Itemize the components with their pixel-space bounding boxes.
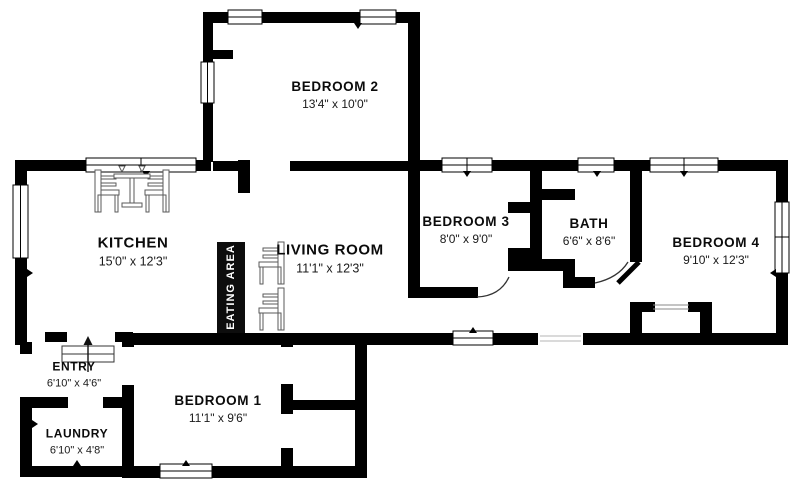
tick-mark	[680, 171, 688, 177]
window	[201, 62, 214, 103]
room-dims: 11'1" x 9'6"	[174, 411, 261, 425]
wall-segment	[508, 259, 575, 271]
tick-mark	[593, 171, 601, 177]
wall-segment	[408, 23, 420, 172]
room-dims: 13'4" x 10'0"	[291, 97, 378, 111]
room-label-living-room: LIVING ROOM 11'1" x 12'3"	[276, 242, 383, 277]
window	[360, 10, 396, 24]
room-label-bedroom-3: BEDROOM 3 8'0" x 9'0"	[422, 214, 509, 246]
wall-segment	[203, 103, 213, 162]
room-dims: 6'6" x 8'6"	[563, 234, 615, 248]
room-name: ENTRY	[47, 360, 101, 374]
wall-segment	[281, 448, 293, 476]
window	[453, 331, 493, 345]
wall-segment	[493, 333, 538, 345]
wall-segment	[15, 332, 27, 342]
room-label-kitchen: KITCHEN 15'0" x 12'3"	[98, 235, 169, 270]
dining-set	[95, 166, 169, 212]
room-name: BEDROOM 3	[422, 214, 509, 230]
wall-segment	[700, 302, 712, 345]
room-dims: 6'10" x 4'6"	[47, 377, 101, 390]
wall-segment	[281, 333, 293, 347]
room-label-bedroom-1: BEDROOM 1 11'1" x 9'6"	[174, 393, 261, 425]
window	[160, 464, 212, 478]
room-dims: 9'10" x 12'3"	[672, 253, 759, 267]
wall-segment	[630, 160, 642, 262]
room-label-bath: BATH 6'6" x 8'6"	[563, 216, 615, 248]
tick-mark	[770, 269, 776, 277]
room-dims: 6'10" x 4'8"	[46, 444, 108, 457]
wall-segment	[238, 160, 250, 193]
wall-segment	[281, 384, 293, 414]
window	[650, 158, 718, 172]
window	[228, 10, 262, 24]
room-label-laundry: LAUNDRY 6'10" x 4'8"	[46, 427, 108, 456]
window	[442, 158, 492, 172]
room-name: KITCHEN	[98, 235, 169, 252]
window	[775, 202, 789, 273]
wall-segment	[290, 161, 408, 171]
wall-segment	[293, 400, 355, 410]
wall-segment	[542, 189, 575, 200]
wall-segment	[20, 397, 68, 408]
chair	[259, 288, 284, 330]
room-label-bedroom-2: BEDROOM 2 13'4" x 10'0"	[291, 79, 378, 111]
wall-segment	[408, 172, 420, 298]
tick-mark	[463, 171, 471, 177]
wall-segment	[508, 248, 542, 259]
tick-mark	[182, 460, 190, 466]
room-name: BEDROOM 2	[291, 79, 378, 95]
entry-arrow-head	[84, 336, 93, 345]
wall-segment	[213, 50, 233, 59]
wall-segment	[20, 342, 32, 354]
room-dims: 15'0" x 12'3"	[98, 255, 169, 269]
wall-segment	[122, 333, 134, 347]
doors	[477, 262, 689, 341]
wall-segment	[203, 23, 213, 62]
tick-mark	[27, 269, 33, 277]
floor-plan: BEDROOM 2 13'4" x 10'0" KITCHEN 15'0" x …	[0, 0, 800, 495]
wall-segment	[508, 202, 532, 213]
wall-segment	[20, 397, 32, 477]
room-name: LIVING ROOM	[276, 242, 383, 259]
tick-mark	[32, 420, 38, 428]
wall-segment	[45, 332, 67, 342]
wall-segment	[408, 287, 478, 298]
wall-segment	[122, 466, 367, 478]
window	[578, 158, 614, 172]
room-name: BEDROOM 4	[672, 235, 759, 251]
tick-mark	[73, 460, 81, 466]
eating-area-label: EATING AREA	[225, 244, 237, 330]
room-label-bedroom-4: BEDROOM 4 9'10" x 12'3"	[672, 235, 759, 267]
room-name: BEDROOM 1	[174, 393, 261, 409]
wall-segment	[563, 277, 595, 288]
room-dims: 11'1" x 12'3"	[276, 262, 383, 276]
window	[13, 185, 28, 258]
wall-segment	[355, 333, 367, 478]
door-leaf	[618, 262, 639, 283]
room-dims: 8'0" x 9'0"	[422, 232, 509, 246]
room-name: LAUNDRY	[46, 427, 108, 441]
wall-segment	[630, 302, 655, 312]
wall-segment	[583, 333, 776, 345]
tick-mark	[469, 327, 477, 333]
room-name: BATH	[563, 216, 615, 232]
room-label-entry: ENTRY 6'10" x 4'6"	[47, 360, 101, 389]
tick-mark	[354, 23, 362, 29]
door-arc	[477, 277, 509, 297]
wall-segment	[20, 466, 134, 477]
wall-segment	[122, 385, 134, 477]
